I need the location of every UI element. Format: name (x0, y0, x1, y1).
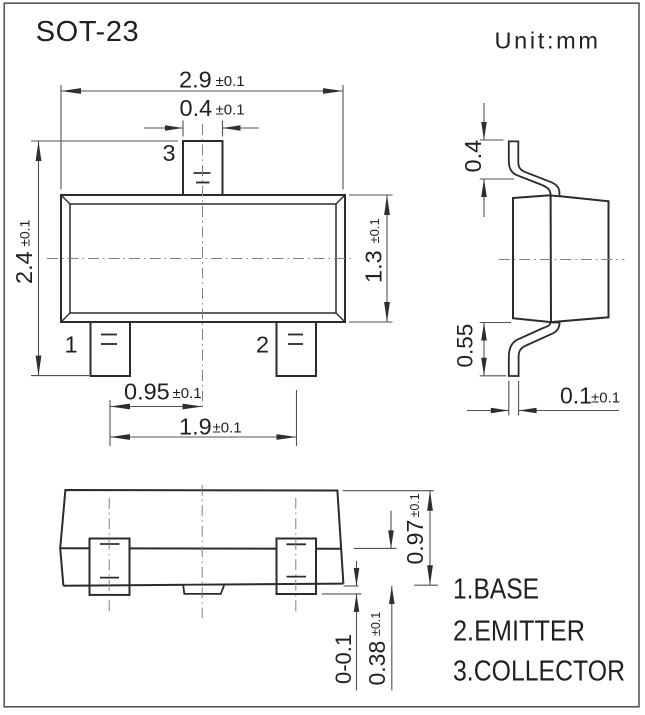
svg-text:±0.1: ±0.1 (408, 493, 422, 517)
svg-text:±0.1: ±0.1 (17, 219, 33, 246)
svg-text:±0.1: ±0.1 (216, 73, 245, 90)
svg-text:±0.1: ±0.1 (216, 102, 245, 119)
svg-text:2.9: 2.9 (179, 67, 212, 93)
svg-text:±0.1: ±0.1 (213, 420, 242, 437)
svg-text:1.3: 1.3 (361, 250, 387, 283)
svg-text:0-0.1: 0-0.1 (331, 634, 356, 684)
svg-text:Unit:mm: Unit:mm (495, 28, 599, 54)
svg-text:0.55: 0.55 (453, 324, 478, 368)
svg-text:0.38: 0.38 (364, 641, 390, 686)
svg-text:±0.1: ±0.1 (173, 385, 202, 402)
svg-text:0.97: 0.97 (402, 520, 428, 565)
svg-text:0.4: 0.4 (180, 95, 213, 121)
svg-text:2.EMITTER: 2.EMITTER (453, 616, 585, 648)
svg-text:0.95: 0.95 (124, 379, 170, 405)
svg-text:SOT-23: SOT-23 (36, 16, 139, 48)
svg-text:±0.1: ±0.1 (591, 390, 620, 407)
svg-text:0.1: 0.1 (560, 383, 592, 409)
svg-text:0.4: 0.4 (460, 140, 486, 173)
svg-text:1: 1 (65, 332, 78, 358)
svg-text:2: 2 (256, 332, 269, 358)
svg-text:1.9: 1.9 (179, 414, 212, 440)
svg-text:3: 3 (163, 140, 176, 166)
svg-text:2.4: 2.4 (11, 251, 37, 284)
svg-text:±0.1: ±0.1 (367, 218, 382, 243)
svg-text:±0.1: ±0.1 (369, 612, 383, 636)
svg-text:3.COLLECTOR: 3.COLLECTOR (453, 656, 625, 688)
svg-text:1.BASE: 1.BASE (453, 574, 539, 606)
